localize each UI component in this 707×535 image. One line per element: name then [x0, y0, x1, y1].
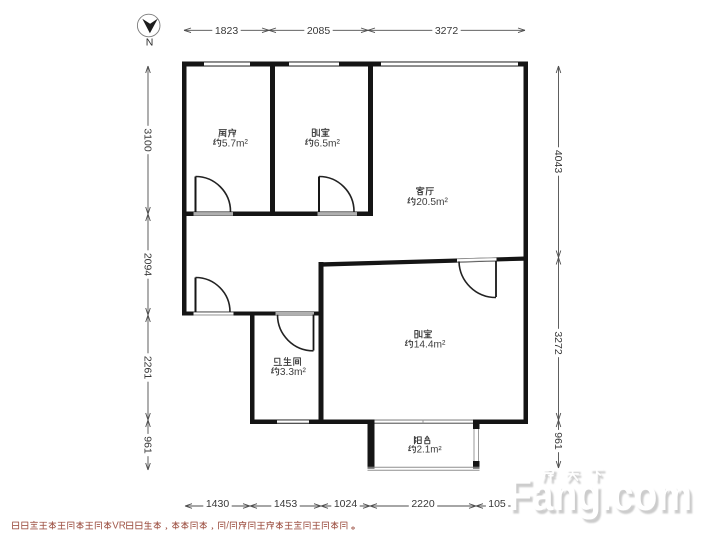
svg-text:3272: 3272: [552, 331, 564, 355]
svg-text:5.7m²: 5.7m²: [222, 138, 249, 149]
svg-text:Fang.com: Fang.com: [508, 469, 692, 520]
svg-text:6.5m²: 6.5m²: [314, 138, 341, 149]
svg-text:20.5m²: 20.5m²: [416, 197, 448, 208]
svg-text:2220: 2220: [411, 498, 435, 510]
svg-text:VR: VR: [112, 521, 126, 532]
svg-text:2085: 2085: [307, 25, 331, 37]
svg-text:4043: 4043: [552, 150, 564, 174]
svg-text:2094: 2094: [141, 253, 153, 277]
svg-text:N: N: [146, 37, 154, 49]
svg-text:961: 961: [552, 432, 564, 450]
svg-text:3100: 3100: [141, 128, 153, 152]
svg-text:14.4m²: 14.4m²: [414, 340, 446, 351]
svg-text:105: 105: [488, 498, 506, 510]
svg-text:3.3m²: 3.3m²: [280, 367, 307, 378]
svg-text:1430: 1430: [206, 498, 230, 510]
svg-text:1024: 1024: [334, 498, 358, 510]
svg-text:2.1m²: 2.1m²: [417, 445, 443, 456]
svg-text:961: 961: [141, 436, 153, 454]
svg-text:1453: 1453: [274, 498, 298, 510]
svg-text:1823: 1823: [215, 25, 239, 37]
svg-text:2261: 2261: [141, 356, 153, 380]
svg-text:/: /: [226, 521, 229, 532]
svg-text:3272: 3272: [435, 25, 459, 37]
